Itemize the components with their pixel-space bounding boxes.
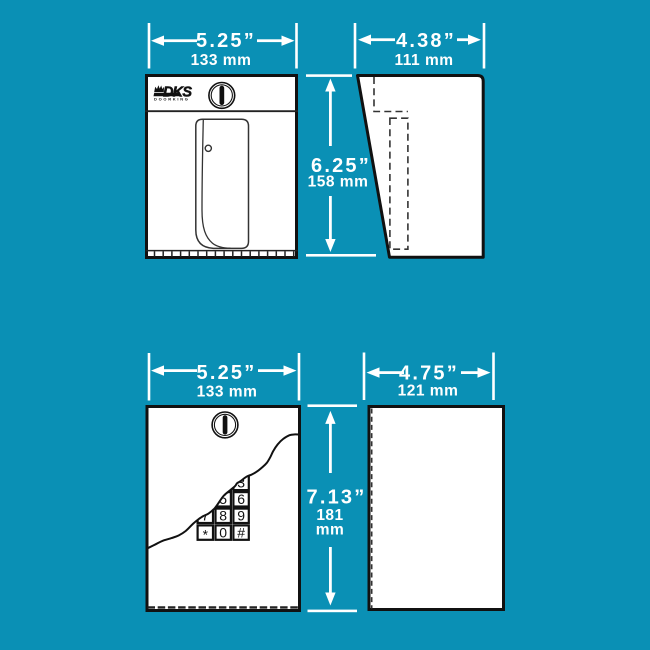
svg-text:121 mm: 121 mm [398,383,459,400]
svg-text:5.25”: 5.25” [197,362,257,384]
svg-text:7.13”: 7.13” [307,487,367,509]
svg-text:133 mm: 133 mm [197,383,258,400]
svg-text:111 mm: 111 mm [394,52,453,69]
svg-text:4.38”: 4.38” [396,30,456,52]
svg-text:6: 6 [237,491,245,507]
svg-text:9: 9 [237,508,245,524]
svg-text:5.25”: 5.25” [196,30,256,52]
svg-text:0: 0 [219,524,227,540]
svg-text:4.75”: 4.75” [399,363,459,385]
svg-text:8: 8 [219,508,227,524]
svg-text:#: # [237,524,245,540]
svg-text:*: * [203,527,209,543]
svg-text:158 mm: 158 mm [308,173,369,190]
svg-text:mm: mm [316,522,345,539]
svg-text:DOORKING: DOORKING [154,97,190,102]
svg-text:133 mm: 133 mm [191,52,252,69]
